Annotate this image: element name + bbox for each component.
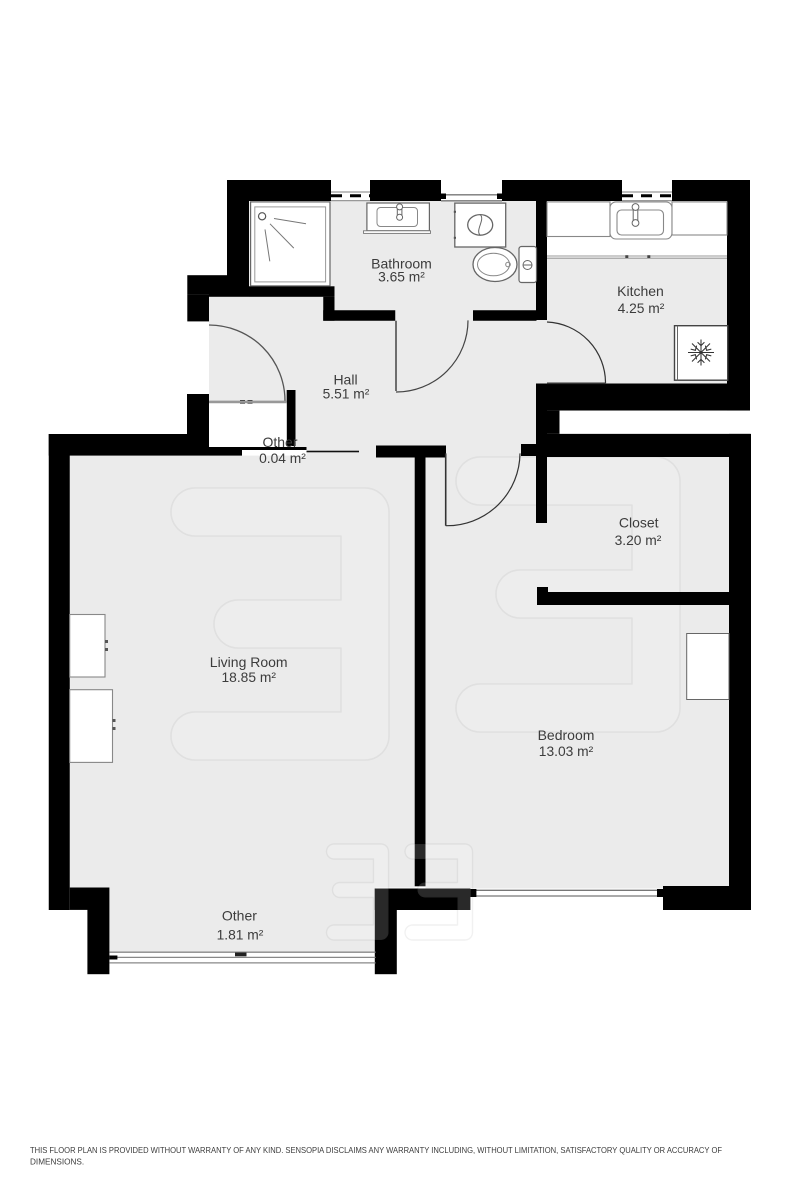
svg-text:13.03 m²: 13.03 m² — [539, 744, 594, 759]
svg-text:Other: Other — [222, 907, 257, 923]
svg-text:Hall: Hall — [333, 371, 357, 387]
svg-text:1.81 m²: 1.81 m² — [217, 928, 264, 943]
svg-text:Other: Other — [262, 434, 297, 450]
svg-text:Living Room: Living Room — [210, 654, 288, 670]
svg-text:0.04 m²: 0.04 m² — [259, 451, 306, 466]
svg-text:Closet: Closet — [619, 514, 659, 530]
svg-text:THIS FLOOR PLAN IS PROVIDED WI: THIS FLOOR PLAN IS PROVIDED WITHOUT WARR… — [30, 1146, 722, 1155]
svg-text:3.20 m²: 3.20 m² — [615, 533, 662, 548]
svg-text:18.85 m²: 18.85 m² — [221, 670, 276, 685]
svg-text:4.25 m²: 4.25 m² — [618, 301, 665, 316]
svg-text:Bedroom: Bedroom — [538, 727, 595, 743]
svg-text:Kitchen: Kitchen — [617, 283, 664, 299]
svg-text:5.51 m²: 5.51 m² — [323, 387, 370, 402]
svg-text:DIMENSIONS.: DIMENSIONS. — [30, 1157, 84, 1166]
svg-text:3.65 m²: 3.65 m² — [378, 270, 425, 285]
